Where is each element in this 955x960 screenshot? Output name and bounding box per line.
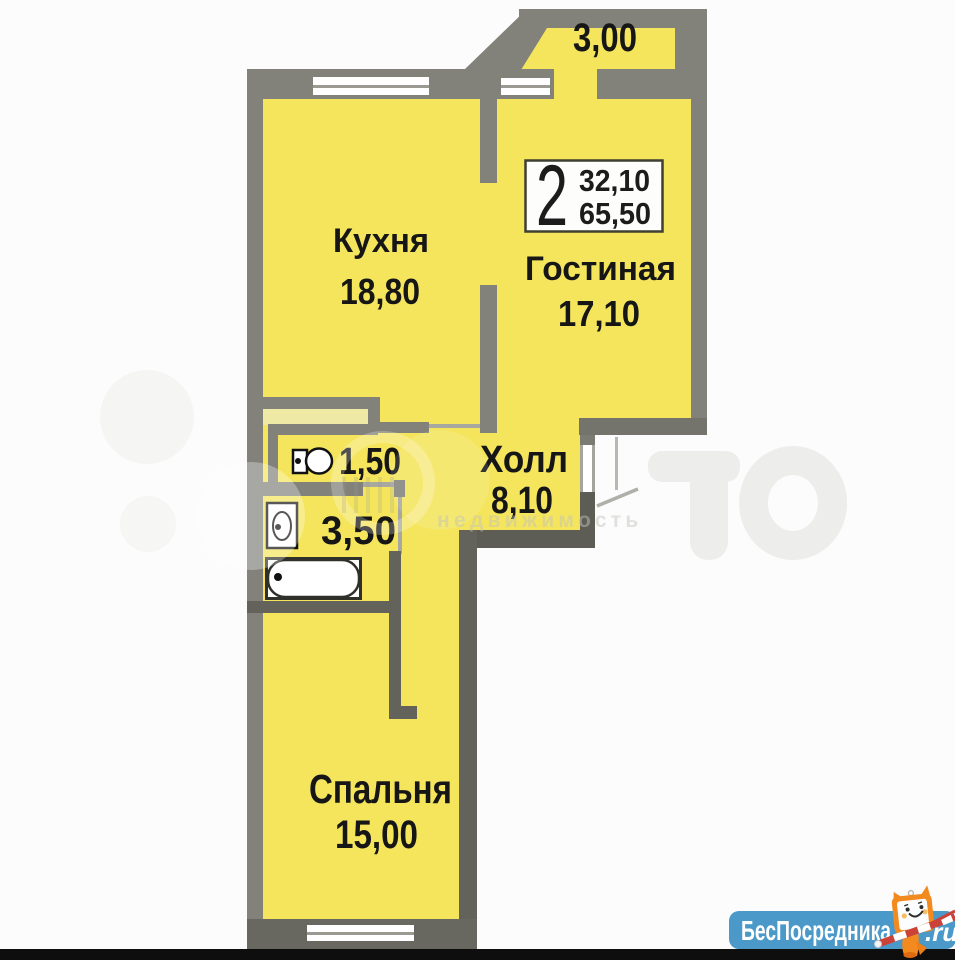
svg-text:65,50: 65,50 <box>579 196 651 231</box>
svg-text:Спальня: Спальня <box>309 766 452 812</box>
svg-text:32,10: 32,10 <box>579 163 650 198</box>
svg-text:Гостиная: Гостиная <box>525 250 676 288</box>
svg-text:17,10: 17,10 <box>558 293 640 334</box>
svg-text:15,00: 15,00 <box>335 813 418 857</box>
svg-text:3,00: 3,00 <box>573 16 637 60</box>
svg-text:18,80: 18,80 <box>340 271 420 312</box>
svg-text:Кухня: Кухня <box>333 222 429 260</box>
svg-text:БесПосредника: БесПосредника <box>741 915 891 946</box>
svg-text:недвижимость: недвижимость <box>437 509 643 532</box>
svg-text:.ru: .ru <box>925 917 955 947</box>
svg-text:Холл: Холл <box>480 439 568 481</box>
svg-text:2: 2 <box>536 148 568 244</box>
